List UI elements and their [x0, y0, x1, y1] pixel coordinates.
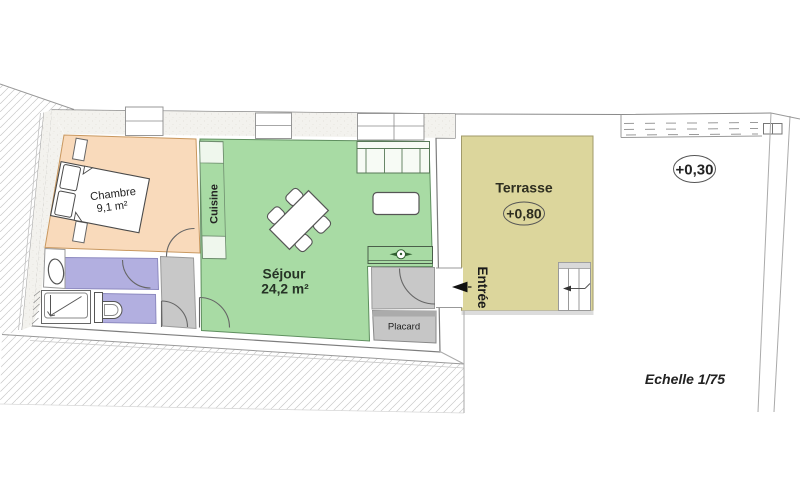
- svg-text:Entrée: Entrée: [475, 267, 490, 310]
- svg-text:Terrasse: Terrasse: [495, 180, 553, 196]
- svg-text:Cuisine: Cuisine: [209, 184, 221, 224]
- svg-text:24,2 m²: 24,2 m²: [261, 282, 309, 297]
- svg-text:+0,80: +0,80: [506, 206, 542, 222]
- svg-text:+0,30: +0,30: [676, 162, 714, 179]
- svg-text:Séjour: Séjour: [263, 267, 307, 282]
- svg-text:Placard: Placard: [388, 322, 420, 333]
- svg-text:Echelle 1/75: Echelle 1/75: [645, 371, 725, 387]
